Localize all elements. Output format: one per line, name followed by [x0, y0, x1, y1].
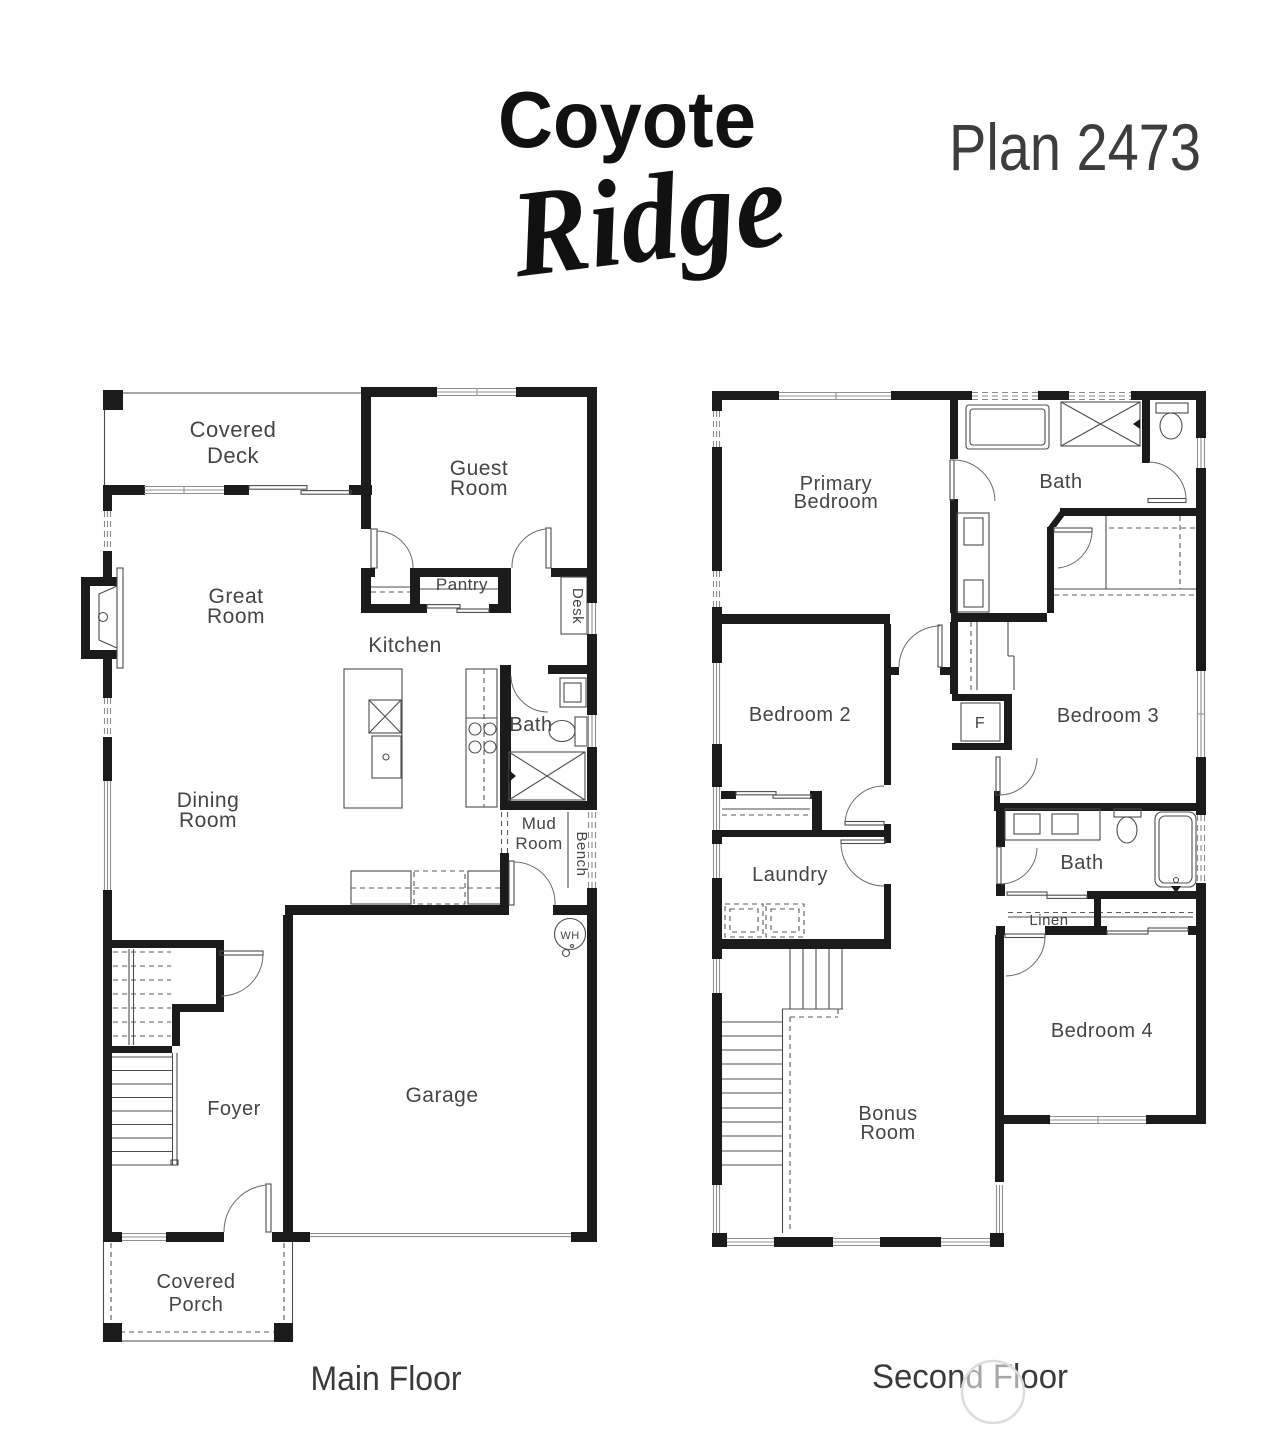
svg-text:Garage: Garage: [405, 1084, 478, 1107]
svg-text:Room: Room: [179, 809, 237, 832]
svg-text:Bath: Bath: [1060, 852, 1103, 874]
svg-text:Deck: Deck: [207, 443, 260, 468]
svg-text:Room: Room: [207, 605, 265, 628]
svg-text:Plan 2473: Plan 2473: [949, 110, 1201, 184]
svg-text:Bath: Bath: [1039, 471, 1082, 493]
svg-text:Main Floor: Main Floor: [311, 1360, 462, 1398]
svg-text:Bedroom: Bedroom: [794, 491, 879, 513]
svg-text:Pantry: Pantry: [436, 575, 488, 594]
svg-text:Covered: Covered: [156, 1271, 235, 1293]
svg-text:Bedroom 3: Bedroom 3: [1057, 705, 1159, 727]
svg-text:F: F: [975, 715, 985, 732]
svg-text:Room: Room: [515, 834, 562, 853]
svg-text:Room: Room: [450, 477, 508, 500]
svg-text:Kitchen: Kitchen: [368, 634, 442, 657]
svg-text:Bedroom 4: Bedroom 4: [1051, 1020, 1153, 1042]
svg-text:Covered: Covered: [190, 417, 277, 442]
svg-text:Desk: Desk: [569, 588, 586, 624]
svg-text:Mud: Mud: [522, 814, 557, 833]
svg-text:Room: Room: [860, 1122, 915, 1144]
svg-text:Porch: Porch: [169, 1294, 224, 1316]
svg-text:Laundry: Laundry: [752, 864, 828, 886]
svg-text:Bath: Bath: [509, 714, 552, 736]
svg-text:Bench: Bench: [573, 831, 590, 876]
svg-text:WH: WH: [560, 930, 579, 942]
svg-text:Foyer: Foyer: [207, 1098, 261, 1120]
svg-text:Bedroom 2: Bedroom 2: [749, 704, 851, 726]
